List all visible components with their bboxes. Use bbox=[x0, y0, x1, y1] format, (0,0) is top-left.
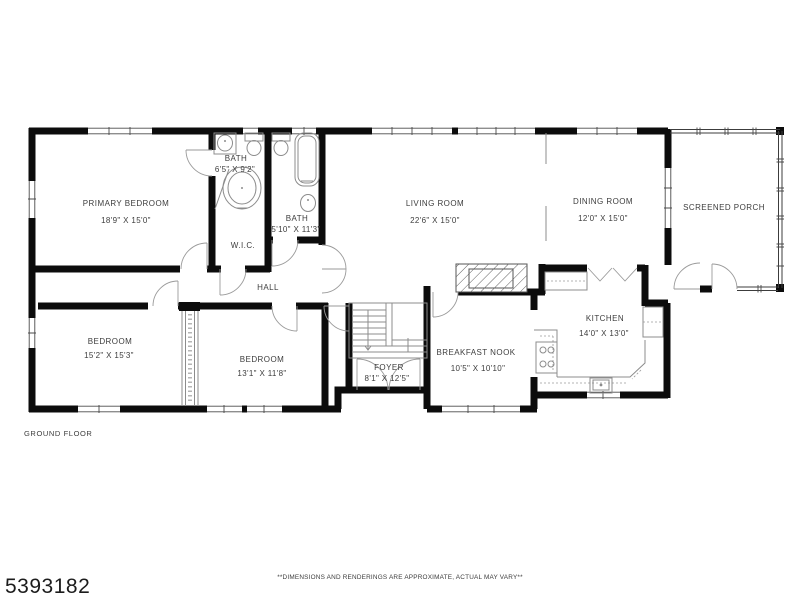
door-bath-lower bbox=[272, 240, 298, 266]
door-bath-upper bbox=[186, 150, 212, 176]
window-nook-bottom bbox=[442, 405, 520, 413]
room-label-foyer: FOYER bbox=[374, 363, 404, 372]
fireplace bbox=[456, 264, 527, 292]
bifold-doors-dining bbox=[588, 268, 637, 281]
chimney-chase bbox=[182, 311, 198, 406]
door-bedroom-middle bbox=[272, 306, 297, 331]
stove bbox=[536, 342, 557, 373]
room-label-dining-room: DINING ROOM bbox=[573, 197, 633, 206]
room-label-bath-upper: BATH bbox=[225, 154, 248, 163]
room-dims-kitchen: 14'0" X 13'0" bbox=[579, 329, 629, 338]
door-wic bbox=[220, 269, 246, 295]
room-dims-dining-room: 12'0" X 15'0" bbox=[578, 214, 628, 223]
room-dims-breakfast-nook: 10'5" X 10'10" bbox=[451, 364, 506, 373]
door-breakfast-nook bbox=[433, 292, 458, 317]
room-label-screened-porch: SCREENED PORCH bbox=[683, 203, 765, 212]
window-bedroom2-bottom-1 bbox=[207, 405, 242, 413]
room-label-bedroom-left: BEDROOM bbox=[88, 337, 133, 346]
door-living-west-2 bbox=[322, 269, 346, 293]
room-dims-living-room: 22'6" X 15'0" bbox=[410, 216, 460, 225]
disclaimer-text: **DIMENSIONS AND RENDERINGS ARE APPROXIM… bbox=[277, 574, 523, 581]
room-label-primary-bedroom: PRIMARY BEDROOM bbox=[83, 199, 169, 208]
window-bedroom-left bbox=[28, 318, 36, 348]
room-label-wic: W.I.C. bbox=[231, 241, 255, 250]
room-dims-bath-lower: 5'10" X 11'3" bbox=[271, 225, 320, 234]
stairs bbox=[349, 303, 427, 358]
pedestal-sink bbox=[301, 195, 316, 212]
door-primary-hall bbox=[181, 243, 207, 269]
listing-id: 5393182 bbox=[5, 575, 90, 598]
room-label-kitchen: KITCHEN bbox=[586, 314, 624, 323]
room-dims-foyer: 8'1" X 12'5" bbox=[365, 374, 410, 383]
room-dims-bath-upper: 6'5" X 9'2" bbox=[215, 165, 255, 174]
window-bedroom2-bottom-2 bbox=[247, 405, 282, 413]
window-living-top-2 bbox=[458, 127, 535, 135]
door-living-west-1 bbox=[322, 245, 346, 269]
window-living-top-1 bbox=[372, 127, 452, 135]
floor-plan-page: PRIMARY BEDROOM 18'9" X 15'0" BATH 6'5" … bbox=[0, 0, 800, 600]
toilet-bowl bbox=[274, 141, 288, 156]
window-bedroom1-bottom bbox=[78, 405, 120, 413]
porch-corner-ne bbox=[776, 127, 784, 135]
door-kitchen-porch bbox=[674, 263, 700, 289]
door-porch-entry bbox=[712, 264, 737, 289]
floor-label: GROUND FLOOR bbox=[24, 429, 92, 438]
window-dining-right bbox=[664, 168, 672, 228]
door-bedroom-left bbox=[153, 281, 178, 306]
bath-lower-fixtures bbox=[272, 133, 319, 212]
room-label-bath-lower: BATH bbox=[286, 214, 309, 223]
room-label-breakfast-nook: BREAKFAST NOOK bbox=[436, 348, 515, 357]
window-primary-top bbox=[88, 127, 152, 135]
room-dims-primary-bedroom: 18'9" X 15'0" bbox=[101, 216, 151, 225]
room-dims-bedroom-left: 15'2" X 15'3" bbox=[84, 351, 134, 360]
room-dims-bedroom-middle: 13'1" X 11'8" bbox=[237, 369, 286, 378]
floor-plan-svg: PRIMARY BEDROOM 18'9" X 15'0" BATH 6'5" … bbox=[0, 0, 800, 600]
window-primary-left bbox=[28, 181, 36, 218]
toilet-bowl bbox=[247, 141, 261, 156]
room-label-hall: HALL bbox=[257, 283, 279, 292]
room-label-living-room: LIVING ROOM bbox=[406, 199, 464, 208]
window-dining-top bbox=[577, 127, 637, 135]
room-label-bedroom-middle: BEDROOM bbox=[240, 355, 285, 364]
chimney-cap bbox=[179, 302, 200, 311]
window-kitchen-bottom bbox=[587, 391, 620, 399]
